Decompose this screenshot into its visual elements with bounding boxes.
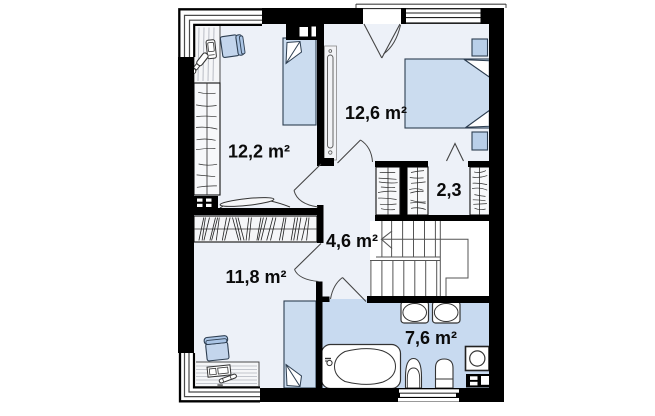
svg-text:12,2 m²: 12,2 m² [228,142,290,162]
svg-text:4,6 m²: 4,6 m² [326,231,378,251]
svg-text:7,6 m²: 7,6 m² [405,328,457,348]
svg-text:12,6 m²: 12,6 m² [345,103,407,123]
svg-text:11,8 m²: 11,8 m² [225,267,286,287]
svg-text:2,3: 2,3 [436,180,461,200]
